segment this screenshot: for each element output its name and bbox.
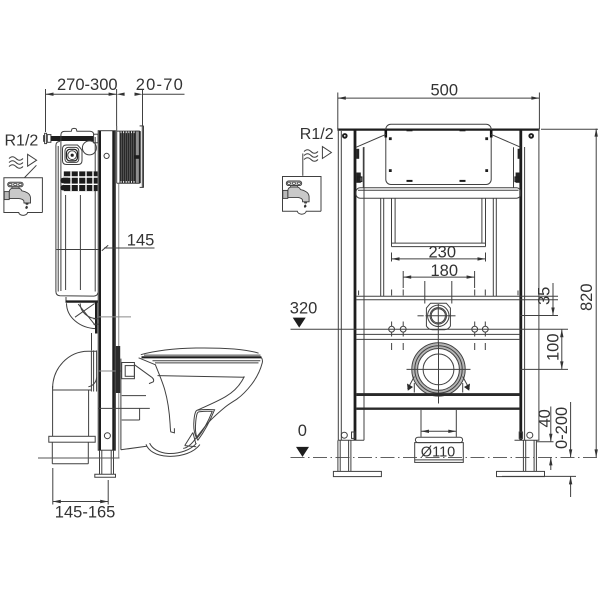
svg-text:20-70: 20-70 xyxy=(136,76,184,94)
svg-text:180: 180 xyxy=(431,262,459,280)
svg-text:R1/2: R1/2 xyxy=(300,126,334,143)
svg-text:R1/2: R1/2 xyxy=(5,132,39,149)
svg-text:820: 820 xyxy=(578,283,596,311)
svg-text:Ø110: Ø110 xyxy=(421,444,455,460)
svg-text:145: 145 xyxy=(127,232,155,250)
svg-text:270-300: 270-300 xyxy=(57,76,118,94)
svg-text:40: 40 xyxy=(536,409,554,427)
svg-text:0: 0 xyxy=(298,422,307,440)
svg-text:100: 100 xyxy=(544,333,562,361)
svg-text:35: 35 xyxy=(536,287,554,305)
svg-text:145-165: 145-165 xyxy=(55,504,116,522)
svg-text:230: 230 xyxy=(429,244,457,262)
svg-text:500: 500 xyxy=(431,81,459,99)
svg-text:0-200: 0-200 xyxy=(553,407,571,449)
svg-text:320: 320 xyxy=(290,300,318,318)
